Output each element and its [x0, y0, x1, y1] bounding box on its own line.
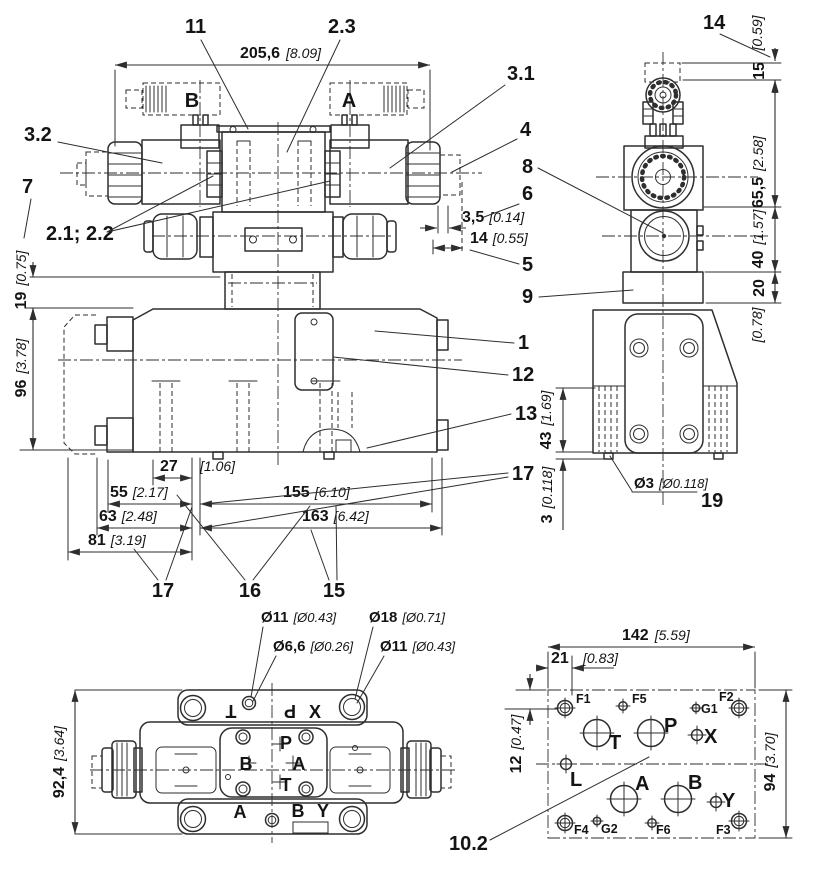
port-a-label: A — [293, 754, 306, 774]
dim-dia6-6: Ø6,6[Ø0.26] — [273, 638, 354, 655]
mounting-holes — [181, 695, 365, 832]
callout-3-2: 3.2 — [24, 124, 52, 146]
label-y: Y — [722, 790, 736, 812]
port-y-label: Y — [317, 801, 329, 821]
hole-p — [634, 716, 668, 750]
port-b2-label: B — [292, 801, 305, 821]
solenoid-connector-b — [126, 83, 220, 125]
bottom-port-labels: T P X P B A T A B Y — [226, 701, 330, 822]
dim-dia18: Ø18[Ø0.71] — [369, 609, 445, 626]
pattern-port-labels: F1 F5 G1 F2 T P X L A B Y F4 G2 F6 F3 — [570, 690, 736, 837]
dim-15-in: [0.59] — [749, 14, 765, 51]
callout-11: 11 — [185, 16, 206, 38]
dim-left-column: 19[0.75] 96[3.78] — [13, 249, 220, 450]
dim-55-label: 55[2.17] — [110, 484, 169, 501]
main-valve-block — [64, 309, 448, 459]
label-f2: F2 — [719, 690, 734, 704]
label-p: P — [664, 715, 677, 737]
dim-63-label: 63[2.48] — [99, 508, 158, 525]
solenoid-end-view — [624, 136, 703, 210]
dim-43-label: 43[1.69] — [538, 389, 555, 449]
dim-dia11-right: Ø11[Ø0.43] — [380, 638, 456, 655]
callout-15: 15 — [323, 580, 345, 602]
socket-screws — [630, 339, 698, 443]
dim-205-6-label: 205,6[8.09] — [240, 45, 322, 62]
dim-65-5-label: 65,5[2.58] — [750, 135, 767, 208]
port-t-rotated: T — [226, 701, 237, 721]
callout-5: 5 — [522, 254, 533, 276]
callout-12: 12 — [512, 364, 534, 386]
dim-96-label: 96[3.78] — [13, 337, 30, 397]
dim-142-label: 142[5.59] — [622, 627, 691, 644]
pilot-nameplate — [245, 228, 302, 251]
callout-9: 9 — [522, 286, 533, 308]
solenoid-b-label: B — [185, 90, 199, 112]
port-x-label: X — [309, 702, 321, 722]
solenoid-a-label: A — [342, 90, 356, 112]
valve-stem — [225, 272, 320, 309]
callout-6: 6 — [522, 183, 533, 205]
label-g1: G1 — [701, 702, 718, 716]
side-view: [0.59] 15 65,5[2.58] 40[1.57] 20 [0.78] … — [538, 12, 781, 530]
port-a2-label: A — [234, 802, 247, 822]
main-block-end-view — [593, 310, 737, 459]
dim-81-label: 81[3.19] — [88, 532, 147, 549]
callout-10-2: 10.2 — [449, 833, 488, 855]
callout-2-1-2-2: 2.1; 2.2 — [46, 223, 114, 245]
front-view: B A — [13, 16, 663, 602]
pilot-valve-body — [217, 126, 330, 212]
callout-7: 7 — [22, 176, 33, 198]
port-t-label: T — [281, 775, 292, 795]
dim-14-label: 14[0.55] — [470, 230, 529, 247]
callout-17-right: 17 — [512, 463, 534, 485]
label-f6: F6 — [656, 823, 671, 837]
callout-14: 14 — [703, 12, 726, 34]
foot-pin-right — [324, 452, 334, 459]
dim-3-label: 3[0.118] — [539, 466, 556, 524]
pilot-end-view — [631, 210, 703, 272]
callout-1: 1 — [518, 332, 529, 354]
dim-94: 94[3.70] — [759, 690, 792, 838]
phantom-knob-raised — [645, 63, 680, 82]
pattern-holes — [555, 698, 749, 833]
label-f3: F3 — [716, 823, 731, 837]
label-b: B — [688, 772, 702, 794]
dim-142: 142[5.59] — [548, 627, 755, 688]
dim-27-in: [1.06] — [199, 458, 236, 474]
callout-13: 13 — [515, 403, 537, 425]
dim-21-in: [0.83] — [582, 650, 619, 666]
callout-19: 19 — [701, 490, 723, 512]
hole-f4 — [555, 813, 575, 833]
dim-20-mm: 20 — [751, 279, 768, 297]
phantom-override-right — [440, 155, 462, 254]
phantom-end-cap — [64, 315, 96, 454]
callout-17-bottom: 17 — [152, 580, 174, 602]
locating-pin-right — [714, 453, 723, 459]
dim-side-right: [0.59] 15 65,5[2.58] 40[1.57] 20 [0.78] — [682, 14, 781, 343]
port-b-label: B — [240, 754, 253, 774]
callout-4: 4 — [520, 119, 532, 141]
dim-dia3-label: Ø3[Ø0.118] — [634, 475, 708, 492]
callout-3-1: 3.1 — [507, 63, 535, 85]
bottom-tube-right — [401, 741, 451, 798]
dim-15-mm: 15 — [751, 62, 768, 80]
label-f5: F5 — [632, 692, 647, 706]
label-f1: F1 — [576, 692, 591, 706]
label-g2: G2 — [601, 822, 618, 836]
retaining-nuts — [207, 151, 340, 197]
valve-technical-drawing: B A — [0, 0, 831, 896]
bottom-hole-callouts: Ø11[Ø0.43] Ø6,6[Ø0.26] Ø18[Ø0.71] Ø11[Ø0… — [251, 609, 456, 703]
solenoid-tube-b — [142, 140, 220, 204]
dim-bottom-chains: 27 [1.06] 55[2.17] 155[6.10] 63[2.48] 16… — [68, 458, 442, 560]
dim-12-label: 12[0.47] — [508, 713, 525, 773]
port-p-label: P — [280, 733, 292, 753]
dim-40-label: 40[1.57] — [750, 208, 767, 268]
hole-f5 — [616, 699, 630, 713]
dim-19-label: 19[0.75] — [13, 249, 30, 309]
dim-20-in: [0.78] — [749, 306, 765, 343]
lower-valve-body — [144, 212, 396, 272]
phantom-override-left — [77, 152, 108, 196]
callout-16: 16 — [239, 580, 261, 602]
pattern-callout: 10.2 — [449, 757, 649, 855]
dim-side-left: 43[1.69] 3[0.118] — [538, 388, 604, 530]
hole-f3 — [729, 811, 749, 831]
label-f4: F4 — [574, 823, 589, 837]
dim-94-label: 94[3.70] — [762, 731, 779, 791]
drawing-page: B A — [0, 0, 831, 896]
label-t: T — [609, 732, 621, 754]
dim-dia11-top: Ø11[Ø0.43] — [261, 609, 337, 626]
dim-92-4-label: 92,4[3.64] — [51, 725, 68, 798]
bottom-view: T P X P B A T A B Y 92,4[3.64] Ø11[Ø0.43… — [51, 609, 458, 843]
bottom-tube-left — [92, 741, 142, 798]
label-l: L — [570, 769, 582, 791]
label-x: X — [704, 726, 718, 748]
dim-21-mm: 21 — [551, 650, 569, 667]
dim-27-mm: 27 — [160, 458, 178, 475]
mounting-pattern-view: 142[5.59] 21 [0.83] 12[0.47] 94[3.70] — [449, 627, 792, 855]
label-a: A — [635, 773, 649, 795]
dim-3-5-label: 3,5[0.14] — [462, 209, 525, 226]
solenoid-tube-a — [330, 140, 408, 204]
port-p-rotated: P — [284, 701, 296, 721]
callout-2-3: 2.3 — [328, 16, 356, 38]
dim-12: 12[0.47] — [505, 674, 558, 773]
callout-8: 8 — [522, 156, 533, 178]
dim-override-stroke: 3,5[0.14] 14[0.55] — [420, 206, 529, 254]
hole-f1 — [555, 698, 575, 718]
